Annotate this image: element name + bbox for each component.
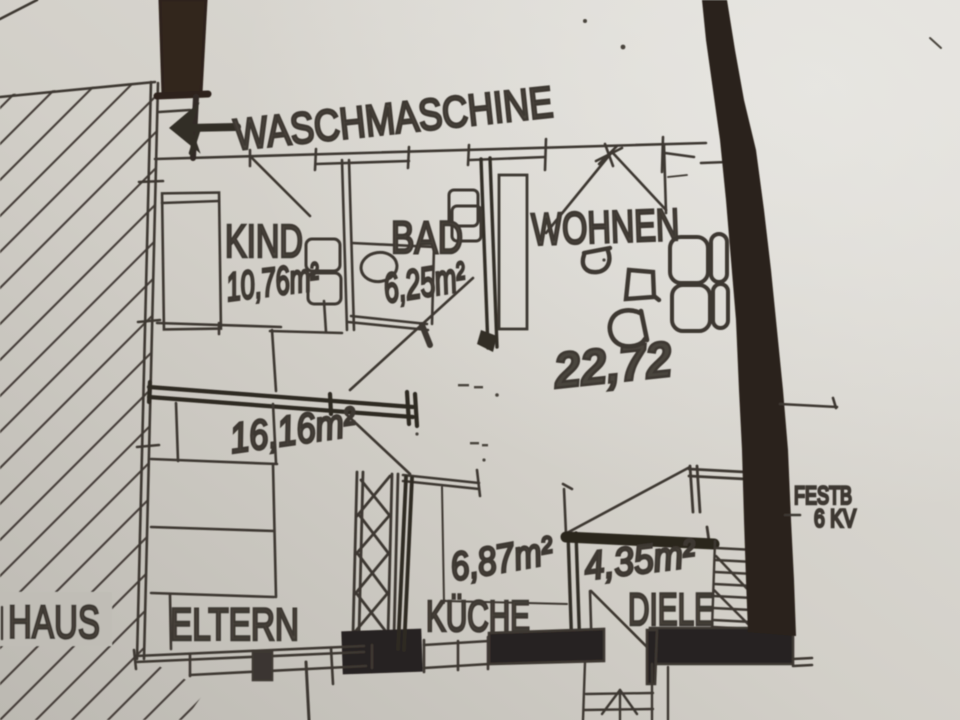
svg-text:WOHNEN: WOHNEN <box>531 199 681 255</box>
svg-text:ELTERN: ELTERN <box>170 599 299 650</box>
svg-text:HAUS: HAUS <box>8 596 100 648</box>
svg-text:6 KV: 6 KV <box>814 505 856 533</box>
